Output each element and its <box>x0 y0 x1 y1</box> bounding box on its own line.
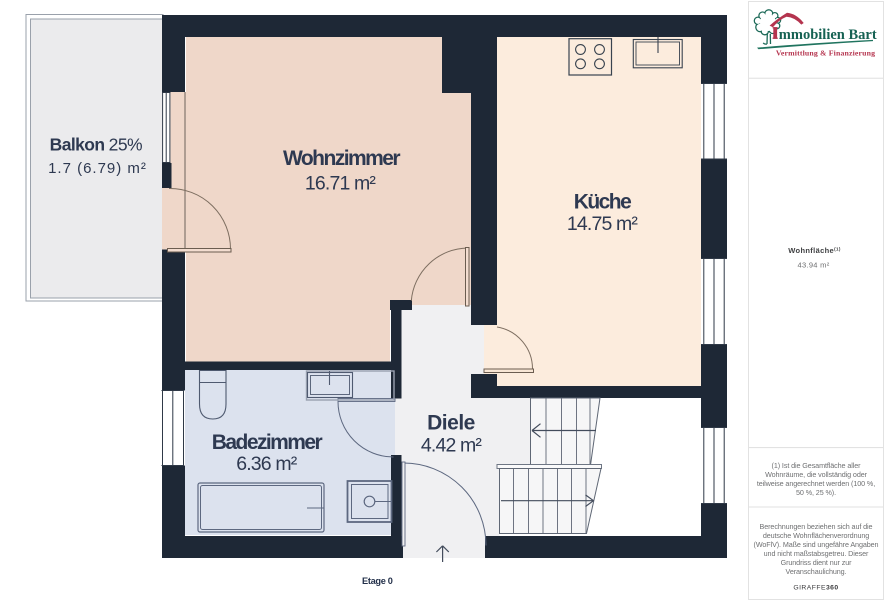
svg-text:Wohnfläche(1): Wohnfläche(1) <box>788 246 841 255</box>
svg-text:Wohnräume, die vollständig ode: Wohnräume, die vollständig oder <box>765 470 868 479</box>
svg-text:GIRAFFE360: GIRAFFE360 <box>793 585 838 592</box>
svg-text:Etage 0: Etage 0 <box>362 576 393 586</box>
svg-text:Grundriss dient nur zur: Grundriss dient nur zur <box>781 558 853 567</box>
svg-text:Diele: Diele <box>427 412 475 435</box>
svg-text:(1) Ist die Gesamtfläche aller: (1) Ist die Gesamtfläche aller <box>772 461 862 470</box>
svg-text:14.75 m²: 14.75 m² <box>567 213 639 235</box>
svg-text:4.42 m²: 4.42 m² <box>421 435 483 457</box>
svg-text:und nicht maßstabsgetreu. Dies: und nicht maßstabsgetreu. Dieser <box>764 549 869 558</box>
svg-text:Berechnungen beziehen sich auf: Berechnungen beziehen sich auf die <box>760 522 873 531</box>
svg-text:Veranschaulichung.: Veranschaulichung. <box>786 567 847 576</box>
svg-text:6.36 m²: 6.36 m² <box>236 453 298 475</box>
svg-text:(WoFlV). Maße sind ungefähre A: (WoFlV). Maße sind ungefähre Angaben <box>754 540 879 549</box>
svg-text:Wohnzimmer: Wohnzimmer <box>283 147 400 170</box>
svg-text:deutsche Wohnflächenverordnung: deutsche Wohnflächenverordnung <box>763 531 869 540</box>
svg-text:Badezimmer: Badezimmer <box>212 431 323 454</box>
svg-text:50 %, 25 %).: 50 %, 25 %). <box>796 488 836 497</box>
svg-text:43.94 m²: 43.94 m² <box>798 261 830 270</box>
svg-text:Balkon 25%: Balkon 25% <box>50 135 142 155</box>
svg-text:Vermittlung & Finanzierung: Vermittlung & Finanzierung <box>776 49 875 58</box>
svg-text:Küche: Küche <box>574 191 631 214</box>
svg-text:1.7 (6.79) m²: 1.7 (6.79) m² <box>48 160 147 177</box>
svg-text:16.71 m²: 16.71 m² <box>305 173 377 195</box>
